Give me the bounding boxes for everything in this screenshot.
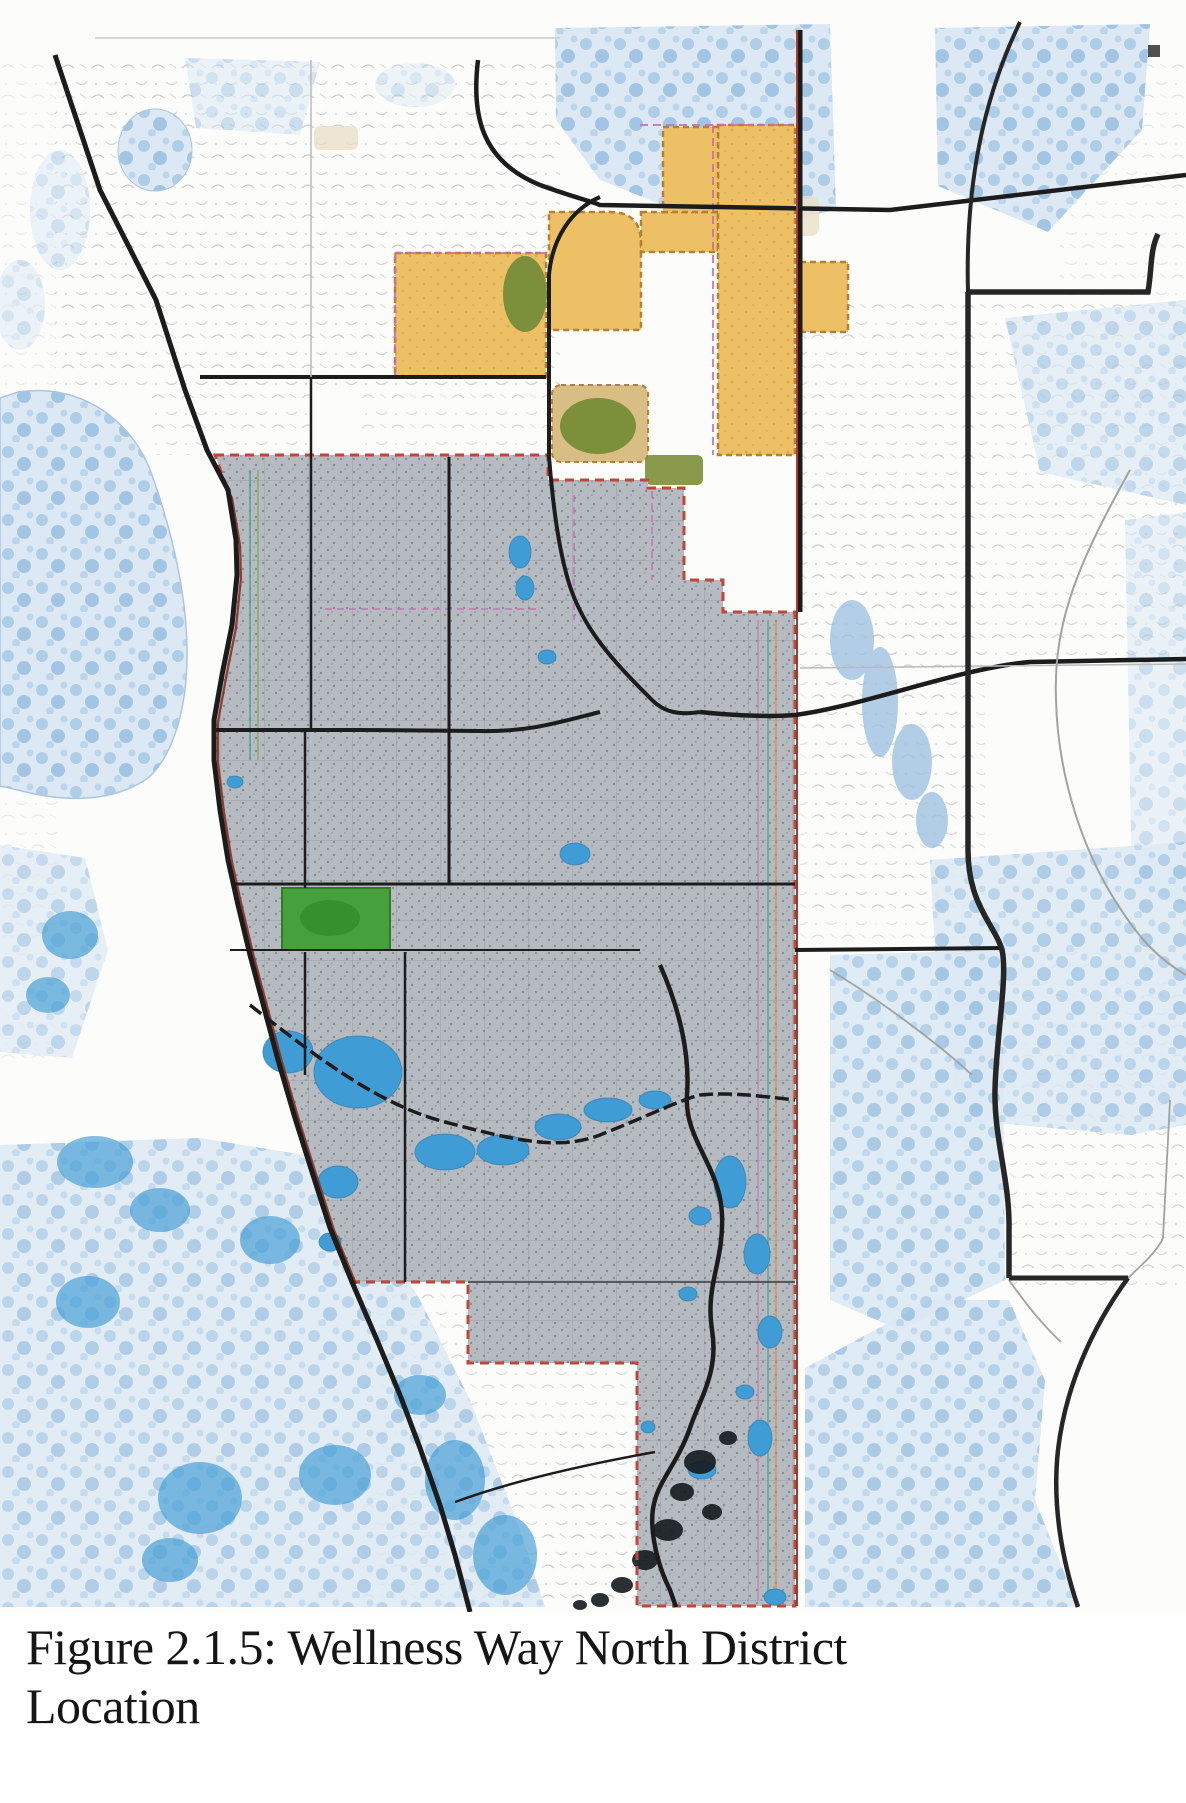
development-block [663,127,718,212]
wetland-area [185,58,320,135]
development-block [800,262,848,332]
wetland-area [1125,512,1186,905]
caption-line-2: Location [26,1677,1146,1736]
figure-caption: Figure 2.1.5: Wellness Way North Distric… [26,1618,1146,1736]
caption-line-1: Figure 2.1.5: Wellness Way North Distric… [26,1618,1146,1677]
green-park-inner [300,900,360,936]
map-tick-mark [1148,45,1160,57]
development-block [641,212,718,252]
development-texture [718,125,795,455]
east-road-south [795,948,1002,950]
location-map-svg [0,0,1186,1612]
wetland-area [30,150,90,270]
wetland-area [375,63,455,107]
lake-northwest-small [118,109,192,191]
location-map [0,0,1186,1612]
wetland-area [830,950,1005,1330]
document-page: Figure 2.1.5: Wellness Way North Distric… [0,0,1186,1803]
